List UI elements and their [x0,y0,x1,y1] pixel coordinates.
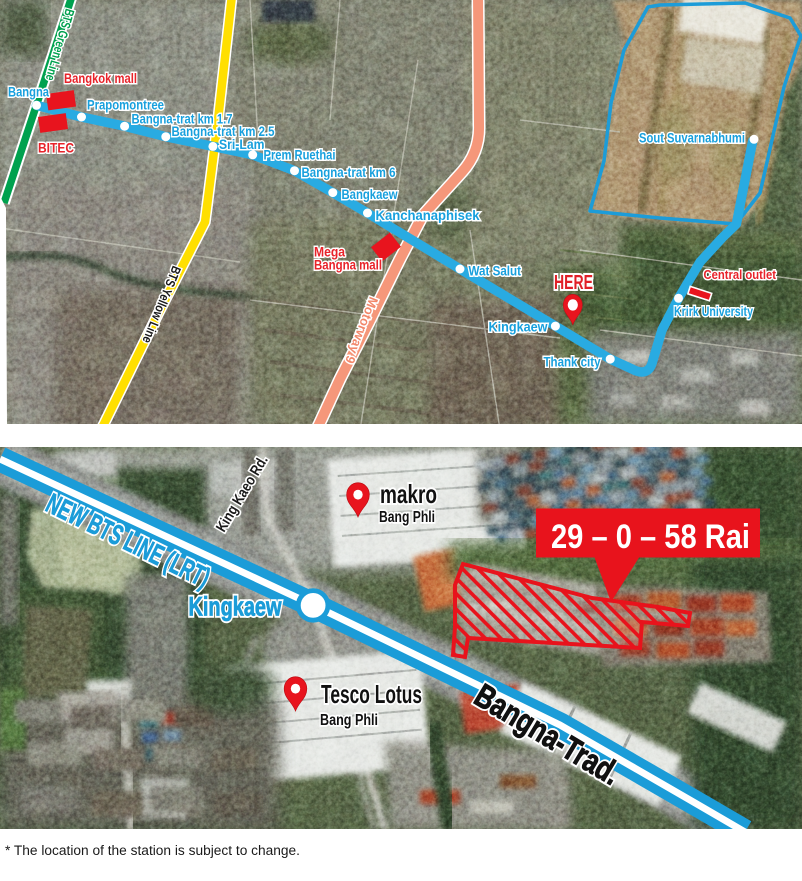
svg-text:Kingkaew: Kingkaew [489,319,548,335]
svg-text:BITEC: BITEC [38,140,74,156]
svg-text:Tesco Lotus: Tesco Lotus [321,679,422,709]
svg-text:Bangna-trat km 6: Bangna-trat km 6 [302,164,396,180]
svg-text:* The location of the station: * The location of the station is subject… [5,843,300,858]
svg-text:Bang Phli: Bang Phli [320,712,378,729]
svg-text:makro: makro [380,479,437,509]
svg-text:Central outlet: Central outlet [704,267,777,282]
svg-text:Kingkaew: Kingkaew [189,592,283,622]
svg-text:Sout Suvarnabhumi: Sout Suvarnabhumi [639,130,745,146]
svg-text:Wat Salut: Wat Salut [469,263,522,279]
svg-text:Bangkok mall: Bangkok mall [64,70,137,86]
svg-text:Bangna: Bangna [8,84,49,100]
svg-text:Kanchanaphisek: Kanchanaphisek [376,207,480,223]
svg-text:Bangkaew: Bangkaew [342,186,398,202]
svg-text:Thank city: Thank city [544,354,601,370]
svg-text:HERE: HERE [554,272,593,294]
svg-text:Bangna mall: Bangna mall [314,257,382,273]
svg-text:Krirk University: Krirk University [674,303,753,319]
svg-text:Sri-Lam: Sri-Lam [219,136,265,152]
svg-text:Bang Phli: Bang Phli [379,509,435,526]
svg-text:29 – 0 – 58 Rai: 29 – 0 – 58 Rai [551,518,750,556]
svg-text:Prem Ruethai: Prem Ruethai [264,147,336,163]
